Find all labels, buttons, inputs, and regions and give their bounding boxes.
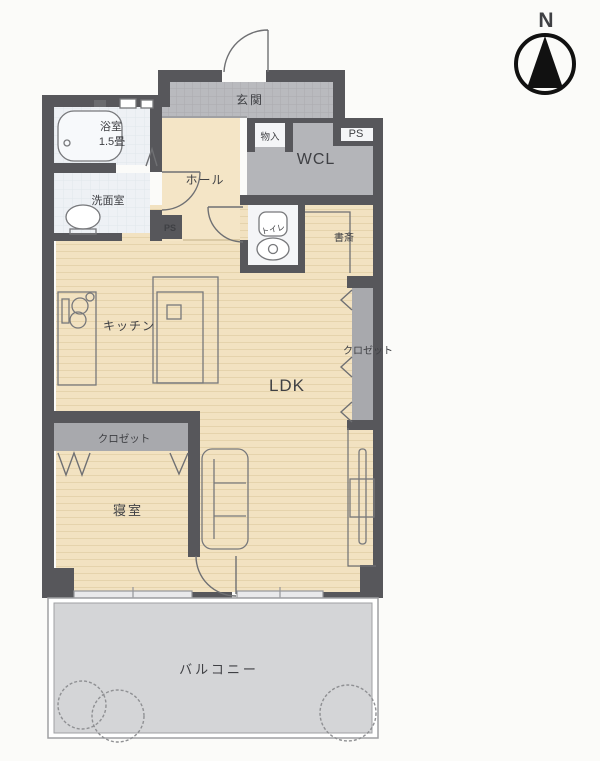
- wall-ps-top-bottom: [333, 141, 375, 146]
- wall-bottom-right-corner: [360, 565, 383, 598]
- wall-toilet-right: [298, 205, 305, 267]
- toilet-bowl: [257, 238, 289, 260]
- shower-fixture-icon: [94, 100, 106, 107]
- entrance-door-swing: [224, 30, 268, 72]
- bath-counter-fixture: [141, 100, 153, 108]
- bathroom-size-label: 1.5畳: [99, 135, 125, 148]
- wcl-label: WCL: [297, 151, 336, 168]
- compass-needle-icon: [527, 36, 563, 88]
- study-label: 書斎: [334, 231, 354, 244]
- wall-bottom-left-corner: [50, 568, 74, 598]
- floor-plan-drawing: 玄関 物入 PS WCL ホール 浴室 1.5畳 洗面室 トイレ PS 書斎 キ…: [0, 0, 600, 761]
- bath-counter-fixture: [120, 99, 136, 108]
- wall-closet-top-block: [347, 276, 383, 288]
- floor-plan-page: 玄関 物入 PS WCL ホール 浴室 1.5畳 洗面室 トイレ PS 書斎 キ…: [0, 0, 600, 761]
- bedroom-closet-label: クロゼット: [98, 433, 151, 445]
- wall-tile-wcl-divider: [247, 118, 373, 123]
- wall-bedroom-top: [42, 411, 200, 423]
- ps-mid-label: PS: [164, 223, 176, 233]
- storage-label: 物入: [260, 131, 280, 143]
- hall-label: ホール: [185, 173, 224, 187]
- wall-toilet-bottom: [240, 265, 305, 273]
- wall-entrance-right: [333, 70, 345, 126]
- compass-north-label: N: [538, 9, 553, 32]
- bedroom-label: 寝室: [113, 503, 143, 518]
- kitchen-label: キッチン: [103, 319, 155, 333]
- ldk-label: LDK: [269, 376, 305, 395]
- wall-bedroom-right: [188, 411, 200, 557]
- wall-storage-left: [247, 118, 255, 152]
- wall-bath-washroom-divider: [42, 163, 116, 173]
- washbasin: [66, 205, 100, 229]
- bathroom-label: 浴室: [100, 119, 122, 133]
- ps-top-label: PS: [349, 128, 364, 140]
- wall-wcl-bottom: [240, 195, 383, 205]
- ldk-closet-label: クロゼット: [343, 345, 393, 357]
- entrance-label: 玄関: [236, 92, 264, 107]
- compass: N: [516, 9, 574, 93]
- washroom-label: 洗面室: [92, 193, 125, 207]
- balcony-label: バルコニー: [179, 662, 259, 677]
- wall-storage-right: [285, 118, 293, 152]
